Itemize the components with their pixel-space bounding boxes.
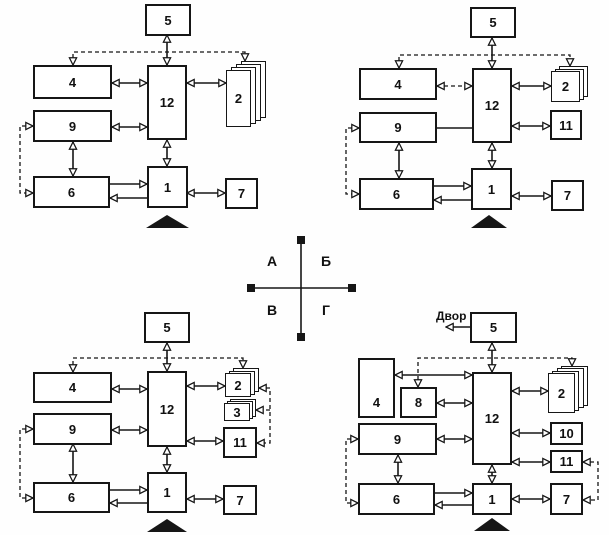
quad-g-box-12: 12 xyxy=(472,372,512,465)
quad-g-box-9: 9 xyxy=(358,423,437,455)
quad-v-box-7: 7 xyxy=(223,485,257,515)
ground-symbol-v xyxy=(147,519,187,532)
conn-g-dashed-left xyxy=(346,439,358,503)
conn-v-dashed-left xyxy=(20,429,33,498)
axis-cross-square-left xyxy=(247,284,255,292)
quad-g-box-6: 6 xyxy=(358,483,435,515)
diagram-canvas: 5 4 12 2 9 6 1 7 5 4 12 2 11 9 6 1 7 А Б… xyxy=(0,0,609,535)
quad-v-box-3-stack: 3 xyxy=(224,403,250,421)
quad-b-box-11: 11 xyxy=(550,110,582,140)
quad-v-box-9: 9 xyxy=(33,413,112,445)
quad-a-box-5: 5 xyxy=(145,4,191,36)
axis-label-b: Б xyxy=(321,254,331,268)
quad-g-box-5: 5 xyxy=(470,312,517,343)
axis-cross-square-right xyxy=(348,284,356,292)
quad-v-box-6: 6 xyxy=(33,482,110,513)
quad-b-box-2-stack: 2 xyxy=(551,71,580,102)
axis-cross-square-bottom xyxy=(297,333,305,341)
conn-a-dashed-left xyxy=(20,126,33,193)
quad-g-box-11: 11 xyxy=(550,450,583,473)
quad-a-box-1: 1 xyxy=(147,166,188,208)
quad-b-box-6: 6 xyxy=(359,178,434,210)
yard-label: Двор xyxy=(436,310,466,322)
quad-b-box-9: 9 xyxy=(359,112,437,143)
quad-g-box-8: 8 xyxy=(400,387,437,418)
axis-label-v: В xyxy=(267,303,277,317)
quad-b-box-2: 2 xyxy=(551,71,580,102)
conn-a-dashed-top xyxy=(73,52,245,65)
quad-b-box-7: 7 xyxy=(551,180,584,211)
quad-v-box-2: 2 xyxy=(225,373,251,397)
quad-b-box-5: 5 xyxy=(470,7,516,38)
quad-g-box-2: 2 xyxy=(548,373,575,413)
quad-a-box-4: 4 xyxy=(33,65,112,99)
quad-g-box-10: 10 xyxy=(550,422,583,445)
quad-v-box-3: 3 xyxy=(224,403,250,421)
conn-v-dashed-right xyxy=(257,388,270,443)
axis-label-g: Г xyxy=(322,303,330,317)
axis-cross-square-top xyxy=(297,236,305,244)
quad-v-box-11: 11 xyxy=(223,427,257,458)
conn-b-dashed-left xyxy=(346,128,359,194)
quad-b-box-12: 12 xyxy=(472,68,512,143)
quad-a-box-12: 12 xyxy=(147,65,187,140)
quad-g-box-1: 1 xyxy=(472,483,512,515)
ground-symbol-g xyxy=(474,518,510,531)
quad-g-box-4: 4 xyxy=(358,358,395,418)
quad-a-box-2-stack: 2 xyxy=(226,70,251,127)
quad-v-box-12: 12 xyxy=(147,371,187,447)
axis-cross xyxy=(247,236,356,341)
quad-a-box-7: 7 xyxy=(225,178,258,209)
quad-g-box-7: 7 xyxy=(550,483,583,515)
ground-symbol-a xyxy=(146,215,189,228)
ground-symbol-b xyxy=(471,215,507,228)
quad-v-box-1: 1 xyxy=(147,472,187,513)
quad-a-box-2: 2 xyxy=(226,70,251,127)
quad-v-box-5: 5 xyxy=(144,312,190,343)
quad-v-box-2-stack: 2 xyxy=(225,373,251,397)
quad-a-box-9: 9 xyxy=(33,110,112,142)
conn-b-dashed-top xyxy=(399,55,570,68)
quad-a-box-6: 6 xyxy=(33,176,110,208)
conn-g-dashed-right xyxy=(583,462,598,500)
quad-b-box-4: 4 xyxy=(359,68,437,100)
axis-label-a: А xyxy=(267,254,277,268)
quad-v-box-4: 4 xyxy=(33,372,112,403)
quad-g-box-2-stack: 2 xyxy=(548,373,575,413)
conn-v-dashed-top xyxy=(73,358,243,372)
quad-b-box-1: 1 xyxy=(471,168,512,210)
